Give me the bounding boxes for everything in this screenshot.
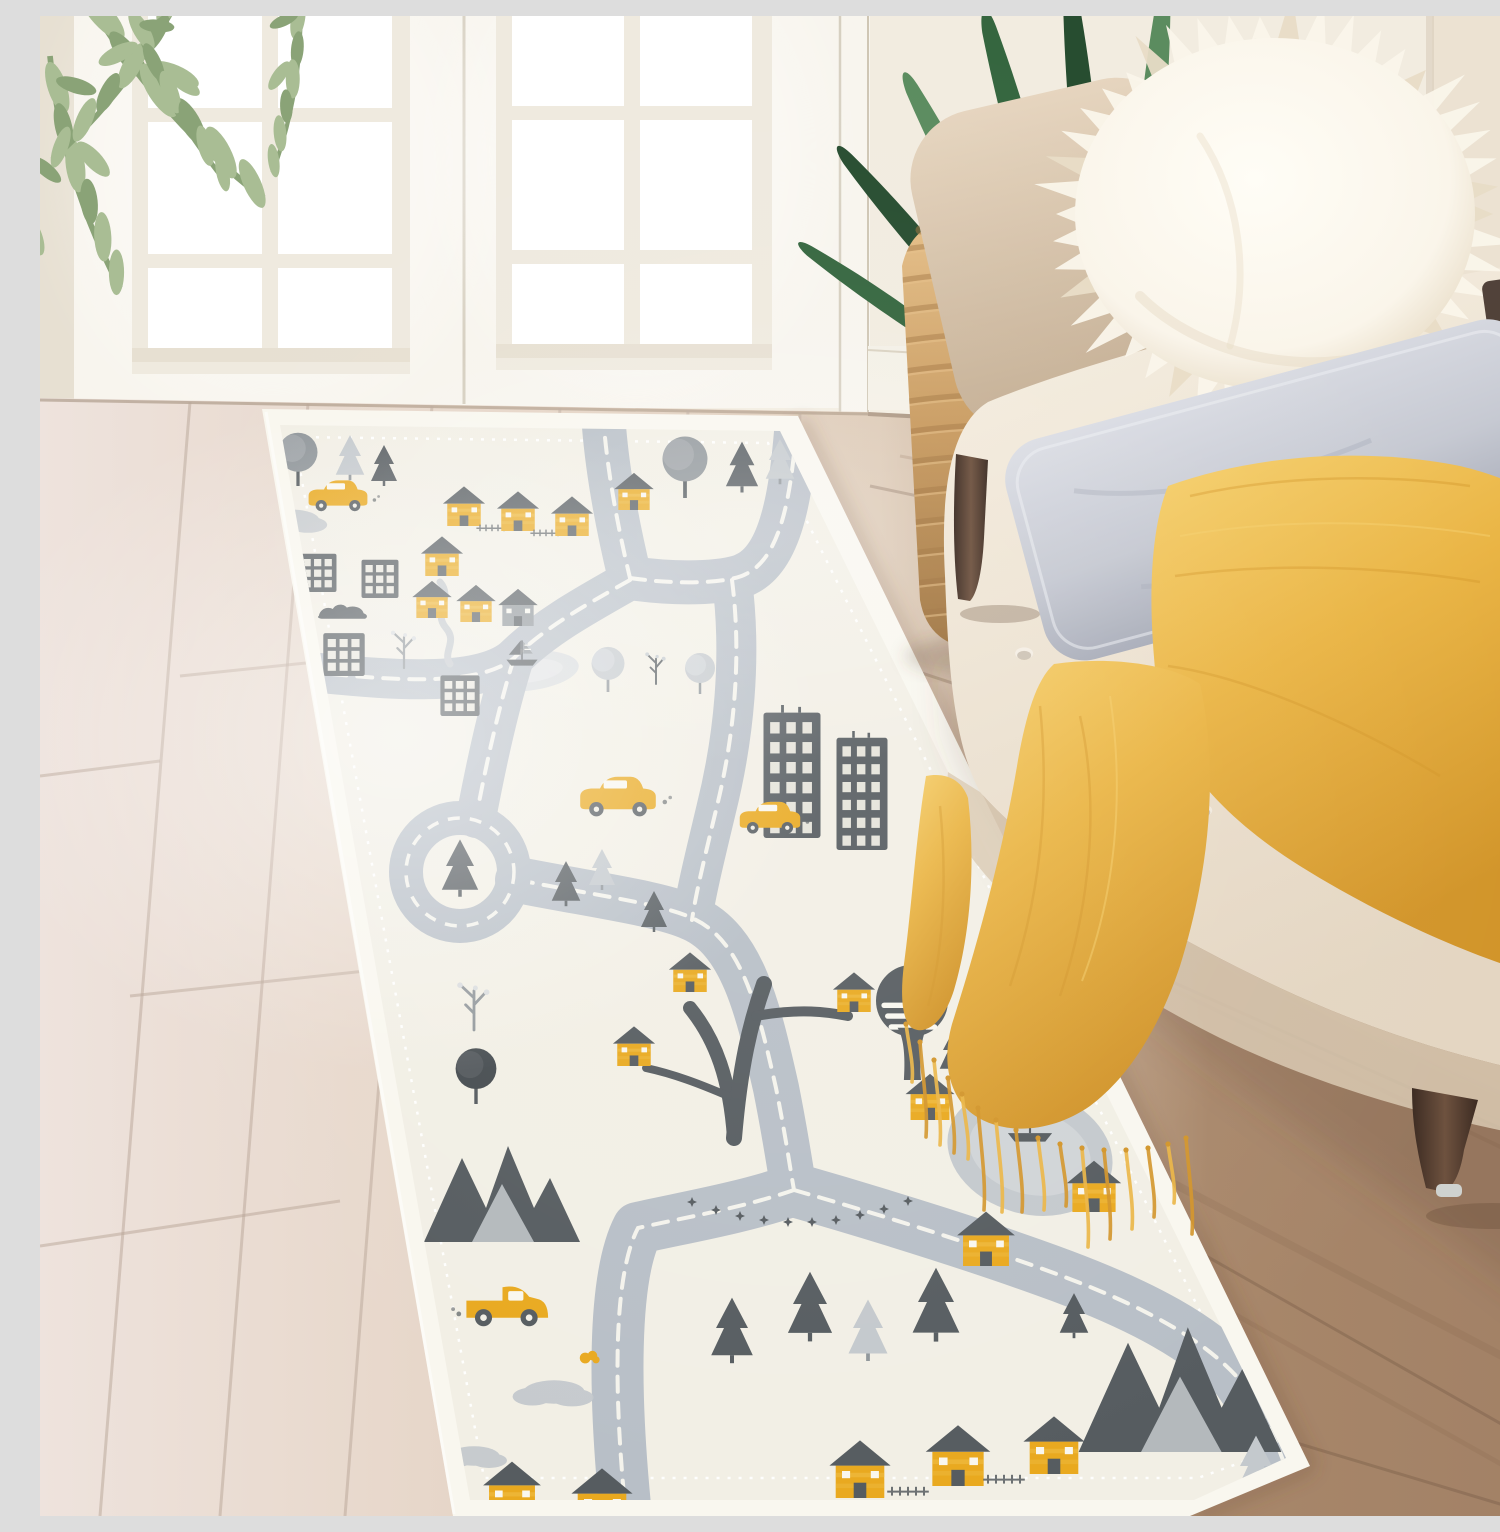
scene-canvas <box>40 16 1500 1516</box>
interior-photo <box>40 16 1500 1516</box>
ambient-light <box>40 16 1500 1516</box>
